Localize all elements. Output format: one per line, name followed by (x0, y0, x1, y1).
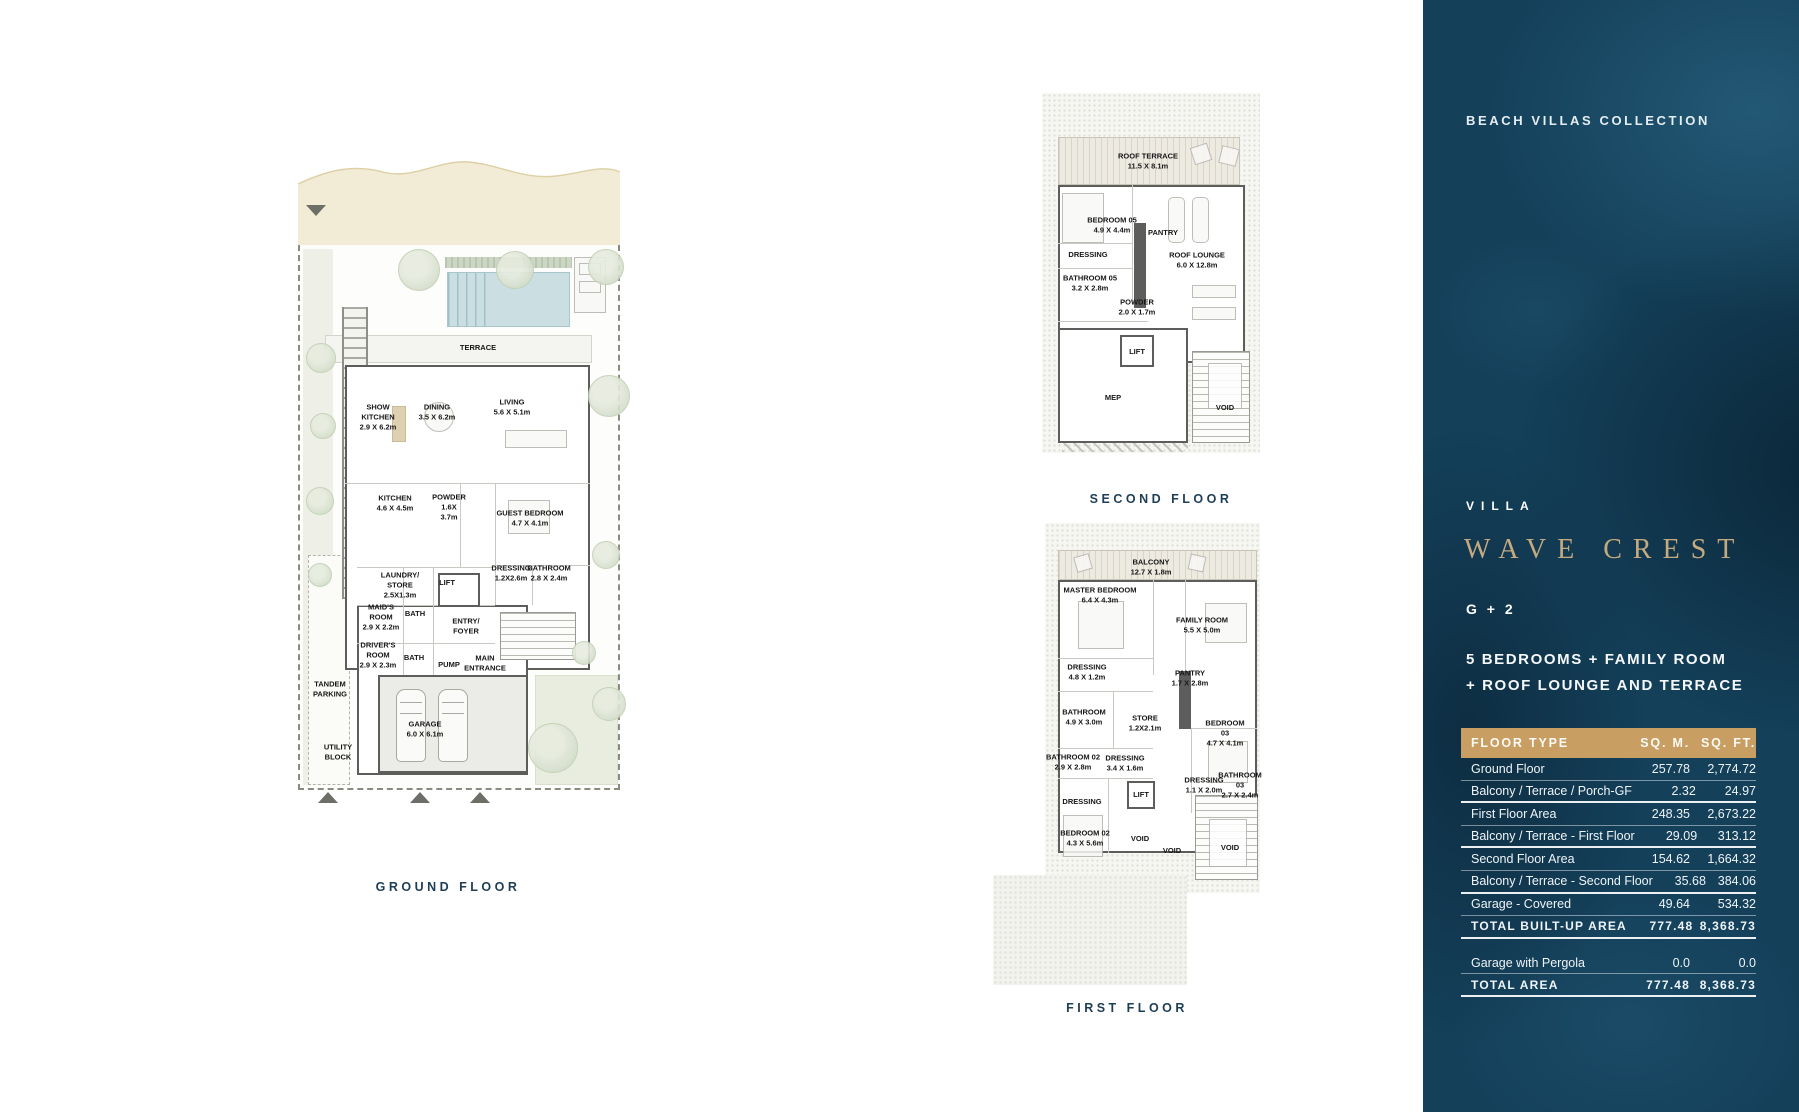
tree (308, 563, 332, 587)
room-label-bathroom-02: BATHROOM 02 2.9 X 2.8m (1046, 752, 1100, 772)
room-label-bedroom-05: BEDROOM 05 4.9 X 4.4m (1087, 215, 1137, 235)
wall (1058, 243, 1132, 244)
room-label-pump: PUMP (438, 660, 460, 670)
second-floor-caption: SECOND FLOOR (1090, 492, 1233, 506)
room-label-dressing-master: DRESSING 4.8 X 1.2m (1067, 662, 1106, 682)
room-label-lift: LIFT (1129, 347, 1145, 357)
villa-description: 5 BEDROOMS + FAMILY ROOM + ROOF LOUNGE A… (1466, 647, 1743, 699)
wall (1058, 691, 1153, 692)
wall (1058, 778, 1153, 779)
garage-room (378, 675, 528, 773)
floor-plan-page: TERRACE SHOW KITCHEN 2.9 X 6.2m DINING 3… (0, 0, 1799, 1112)
room-label-bathroom-03: BATHROOM 03 2.7 X 2.4m (1218, 770, 1262, 799)
room-label-bedroom-02: BEDROOM 02 4.3 X 5.6m (1060, 828, 1110, 848)
ground-floor-caption: GROUND FLOOR (376, 880, 521, 894)
pantry-shaft (1134, 223, 1146, 308)
room-label-family-room: FAMILY ROOM 5.5 X 5.0m (1176, 615, 1228, 635)
table-row-total-built-up: TOTAL BUILT-UP AREA 777.48 8,368.73 (1461, 916, 1756, 939)
tree (572, 641, 596, 665)
tree (306, 343, 336, 373)
room-label-dressing: DRESSING 1.2X2.6m (491, 563, 530, 583)
room-label-dressing: DRESSING (1068, 250, 1107, 260)
room-label-dressing-02: DRESSING 3.4 X 1.6m (1105, 753, 1144, 773)
wall (433, 567, 434, 675)
villa-config: G + 2 (1466, 601, 1516, 617)
room-label-entry-foyer: ENTRY/ FOYER (452, 616, 479, 636)
wall (1058, 658, 1153, 659)
tree (398, 249, 440, 291)
entry-stairs (500, 612, 576, 660)
lower-terrace-area (993, 875, 1187, 985)
room-label-living: LIVING 5.6 X 5.1m (494, 397, 531, 417)
pool-lane-lines (448, 273, 490, 326)
area-table-header: FLOOR TYPE SQ. M. SQ. FT. (1461, 728, 1756, 758)
villa-description-line2: + ROOF LOUNGE AND TERRACE (1466, 673, 1743, 699)
second-floor-plan: ROOF TERRACE 11.5 X 8.1m BEDROOM 05 4.9 … (1042, 93, 1260, 513)
tree (306, 487, 334, 515)
table-row: Garage - Covered 49.64 534.32 (1461, 894, 1756, 917)
tree (588, 249, 624, 285)
room-label-store: STORE 1.2X2.1m (1129, 713, 1162, 733)
first-floor-caption: FIRST FLOOR (1066, 1001, 1188, 1015)
wall (1153, 580, 1154, 675)
room-label-terrace: TERRACE (460, 343, 496, 353)
balcony-chair (1188, 554, 1207, 573)
bench (1192, 285, 1236, 298)
room-label-bedroom-03: BEDROOM 03 4.7 X 4.1m (1201, 718, 1249, 747)
room-label-dining: DINING 3.5 X 6.2m (419, 402, 456, 422)
room-label-laundry-store: LAUNDRY/ STORE 2.5X1.3m (381, 570, 419, 599)
wall (1058, 321, 1148, 322)
room-label-roof-lounge: ROOF LOUNGE 6.0 X 12.8m (1169, 250, 1225, 270)
entrance-marker-icon (470, 792, 490, 803)
room-label-lift: LIFT (1133, 790, 1149, 800)
tree (588, 375, 630, 417)
wall (345, 483, 590, 484)
master-bed (1078, 601, 1124, 649)
ground-floor-plan: TERRACE SHOW KITCHEN 2.9 X 6.2m DINING 3… (298, 150, 620, 920)
table-row: Balcony / Terrace - First Floor 29.09 31… (1461, 826, 1756, 849)
entrance-marker-icon (410, 792, 430, 803)
room-label-powder: POWDER 2.0 X 1.7m (1119, 297, 1156, 317)
room-label-void-3: VOID (1221, 843, 1239, 853)
tree (592, 541, 620, 569)
wall (357, 567, 495, 568)
beach-access-marker-icon (306, 205, 326, 216)
table-row: First Floor Area 248.35 2,673.22 (1461, 803, 1756, 826)
room-label-bath2: BATH (404, 653, 424, 663)
room-label-void-2: VOID (1163, 846, 1181, 856)
wall (1191, 728, 1192, 813)
collection-title: BEACH VILLAS COLLECTION (1466, 113, 1710, 128)
first-floor-plan: BALCONY 12.7 X 1.8m MASTER BEDROOM 6.4 X… (993, 523, 1273, 1023)
room-label-void: VOID (1216, 403, 1234, 413)
wall (1058, 748, 1153, 749)
table-row: Balcony / Terrace - Second Floor 35.68 3… (1461, 871, 1756, 894)
room-label-powder: POWDER 1.6X 3.7m (432, 492, 466, 521)
tree (528, 723, 578, 773)
room-label-bathroom-05: BATHROOM 05 3.2 X 2.8m (1063, 273, 1117, 293)
room-label-drivers-room: DRIVER'S ROOM 2.9 X 2.3m (360, 640, 397, 669)
tree (310, 413, 336, 439)
table-row: Ground Floor 257.78 2,774.72 (1461, 758, 1756, 781)
room-label-garage: GARAGE 6.0 X 6.1m (407, 719, 444, 739)
area-table: FLOOR TYPE SQ. M. SQ. FT. Ground Floor 2… (1461, 728, 1756, 997)
tree (496, 251, 534, 289)
room-label-balcony: BALCONY 12.7 X 1.8m (1131, 557, 1172, 577)
room-label-main-entrance: MAIN ENTRANCE (464, 653, 506, 673)
wall (1058, 268, 1132, 269)
hatch-strip (1062, 443, 1188, 452)
table-row: Second Floor Area 154.62 1,664.32 (1461, 848, 1756, 871)
room-label-utility-block: UTILITY BLOCK (324, 742, 352, 762)
room-label-bathroom-master: BATHROOM 4.9 X 3.0m (1062, 707, 1106, 727)
room-label-bathroom: BATHROOM 2.8 X 2.4m (527, 563, 571, 583)
room-label-guest-bedroom: GUEST BEDROOM 4.7 X 4.1m (496, 508, 563, 528)
room-label-roof-terrace: ROOF TERRACE 11.5 X 8.1m (1118, 151, 1178, 171)
lounger (1192, 197, 1209, 243)
villa-name: WAVE CREST (1464, 534, 1745, 566)
room-label-kitchen: KITCHEN 4.6 X 4.5m (377, 493, 414, 513)
table-gap (1461, 939, 1756, 952)
villa-label: VILLA (1466, 499, 1536, 513)
room-label-pantry: PANTRY 1.7 X 2.8m (1172, 668, 1209, 688)
beach-shore-graphic (298, 150, 620, 245)
header-sqm: SQ. M. (1620, 736, 1690, 750)
header-sqft: SQ. FT. (1690, 736, 1756, 750)
room-label-dressing: DRESSING (1062, 797, 1101, 807)
room-label-lift: LIFT (439, 578, 455, 588)
table-row-total-area: TOTAL AREA 777.48 8,368.73 (1461, 974, 1756, 997)
living-sofa (505, 430, 567, 448)
wall (495, 483, 496, 605)
room-label-void-1: VOID (1131, 834, 1149, 844)
tree (592, 687, 626, 721)
villa-description-line1: 5 BEDROOMS + FAMILY ROOM (1466, 647, 1743, 673)
room-label-mep: MEP (1105, 393, 1121, 403)
void-box (1208, 363, 1242, 409)
wall (1113, 691, 1114, 748)
entrance-marker-icon (318, 792, 338, 803)
table-row: Balcony / Terrace / Porch-GF 2.32 24.97 (1461, 781, 1756, 804)
header-floor-type: FLOOR TYPE (1461, 736, 1620, 750)
room-label-tandem-parking: TANDEM PARKING (313, 679, 347, 699)
room-label-maids-room: MAID'S ROOM 2.9 X 2.2m (363, 602, 400, 631)
info-sidebar: BEACH VILLAS COLLECTION VILLA WAVE CREST… (1423, 0, 1799, 1112)
room-label-master-bedroom: MASTER BEDROOM 6.4 X 4.3m (1064, 585, 1137, 605)
table-row: Garage with Pergola 0.0 0.0 (1461, 952, 1756, 975)
room-label-pantry: PANTRY (1148, 228, 1178, 238)
room-label-show-kitchen: SHOW KITCHEN 2.9 X 6.2m (360, 402, 397, 431)
room-label-bath: BATH (405, 609, 425, 619)
bench (1192, 307, 1236, 320)
